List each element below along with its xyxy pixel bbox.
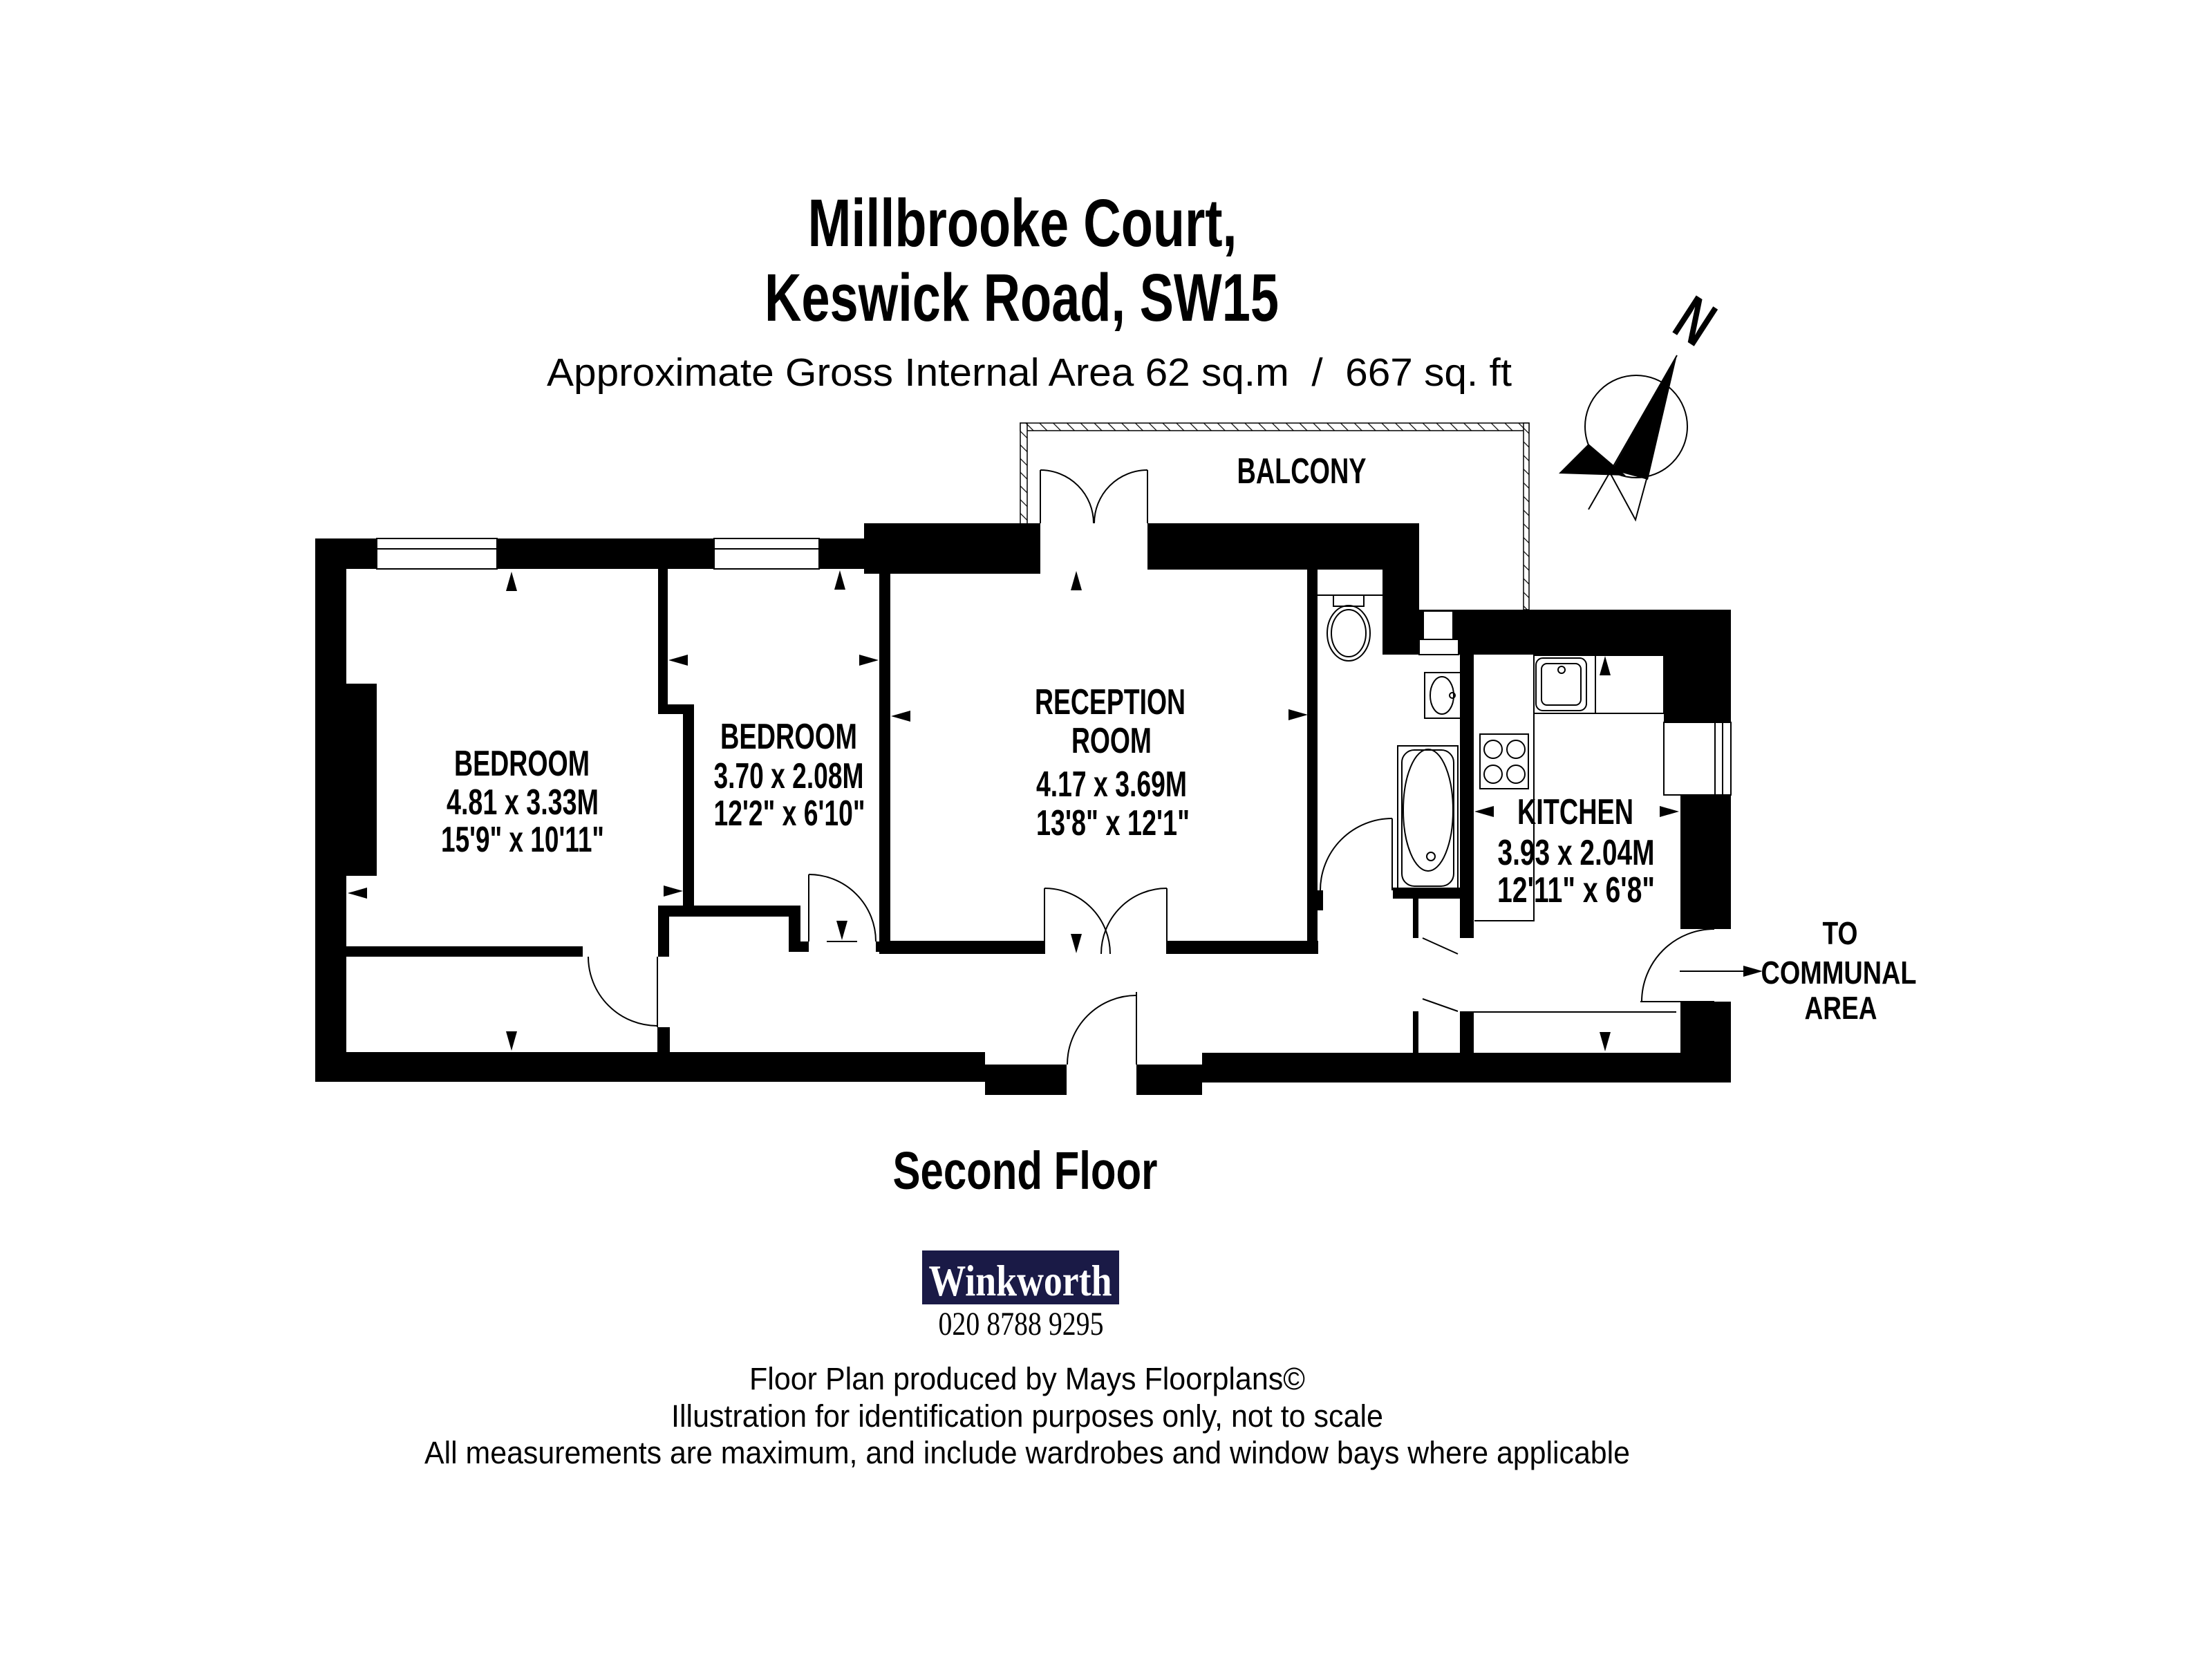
svg-text:BEDROOM: BEDROOM (720, 717, 857, 757)
svg-text:TO: TO (1823, 915, 1858, 951)
svg-text:020 8788 9295: 020 8788 9295 (939, 1306, 1104, 1342)
svg-text:COMMUNAL: COMMUNAL (1761, 955, 1917, 991)
svg-text:3.70 x 2.08M: 3.70 x 2.08M (714, 756, 864, 796)
svg-text:AREA: AREA (1805, 990, 1877, 1026)
svg-text:4.17 x 3.69M: 4.17 x 3.69M (1036, 765, 1187, 805)
svg-text:12'11" x 6'8": 12'11" x 6'8" (1497, 870, 1655, 910)
svg-text:Keswick Road, SW15: Keswick Road, SW15 (765, 260, 1279, 335)
svg-text:15'9" x 10'11": 15'9" x 10'11" (441, 820, 604, 860)
svg-text:BEDROOM: BEDROOM (454, 744, 590, 784)
svg-text:Second Floor: Second Floor (893, 1141, 1158, 1201)
svg-text:RECEPTION: RECEPTION (1035, 682, 1185, 722)
svg-text:KITCHEN: KITCHEN (1517, 792, 1633, 832)
svg-text:All measurements are maximum,: All measurements are maximum, and includ… (424, 1435, 1630, 1470)
svg-text:Illustration for identificatio: Illustration for identification purposes… (671, 1398, 1383, 1434)
svg-text:Winkworth: Winkworth (929, 1257, 1112, 1305)
svg-text:4.81 x 3.33M: 4.81 x 3.33M (447, 782, 599, 823)
svg-text:3.93 x 2.04M: 3.93 x 2.04M (1498, 833, 1655, 873)
svg-text:ROOM: ROOM (1071, 721, 1152, 761)
svg-text:13'8" x 12'1": 13'8" x 12'1" (1036, 803, 1190, 843)
svg-text:Floor Plan produced by Mays Fl: Floor Plan produced by Mays Floorplans© (749, 1361, 1305, 1396)
svg-text:BALCONY: BALCONY (1237, 451, 1367, 491)
svg-text:Approximate Gross Internal Are: Approximate Gross Internal Area 62 sq.m … (547, 350, 1512, 395)
svg-text:Millbrooke Court,: Millbrooke Court, (808, 185, 1237, 261)
svg-text:12'2" x 6'10": 12'2" x 6'10" (714, 794, 865, 834)
